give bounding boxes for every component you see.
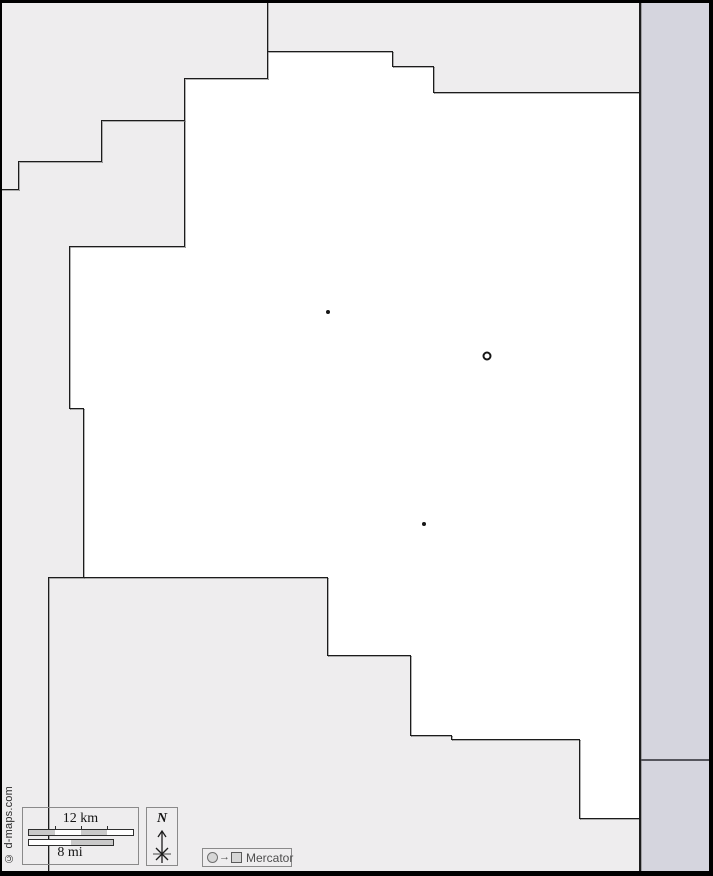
scale-km-bar (28, 829, 134, 836)
scale-segment (81, 830, 107, 835)
town-dot-marker (326, 310, 330, 314)
projection-arrow-icon: → (219, 852, 230, 863)
globe-circle-icon (207, 852, 218, 863)
county-seat-ring-marker (483, 352, 492, 361)
scale-tick (81, 826, 82, 830)
scale-box: 12 km 8 mi (22, 807, 139, 865)
compass-needle-icon (150, 827, 174, 865)
projected-square-icon (231, 852, 242, 863)
scale-km-label: 12 km (23, 812, 138, 826)
copyright-attribution: © d-maps.com (3, 786, 17, 864)
frame-border-top (0, 0, 713, 3)
marker-layer (0, 0, 713, 876)
frame-border-left (0, 0, 2, 876)
frame-border-right (709, 0, 713, 876)
town-dot-marker (422, 522, 426, 526)
scale-segment (55, 830, 81, 835)
frame-border-bottom (0, 871, 713, 876)
projection-box: → Mercator (202, 848, 292, 867)
scale-tick (55, 826, 56, 830)
scale-mi-label: 8 mi (28, 846, 112, 860)
compass-north-label: N (147, 811, 177, 827)
scale-segment (29, 830, 55, 835)
compass-box: N (146, 807, 178, 866)
scale-segment (107, 830, 133, 835)
scale-tick (107, 826, 108, 830)
projection-name: Mercator (246, 851, 293, 865)
map-canvas: 12 km 8 mi N → Mercator (0, 0, 713, 876)
